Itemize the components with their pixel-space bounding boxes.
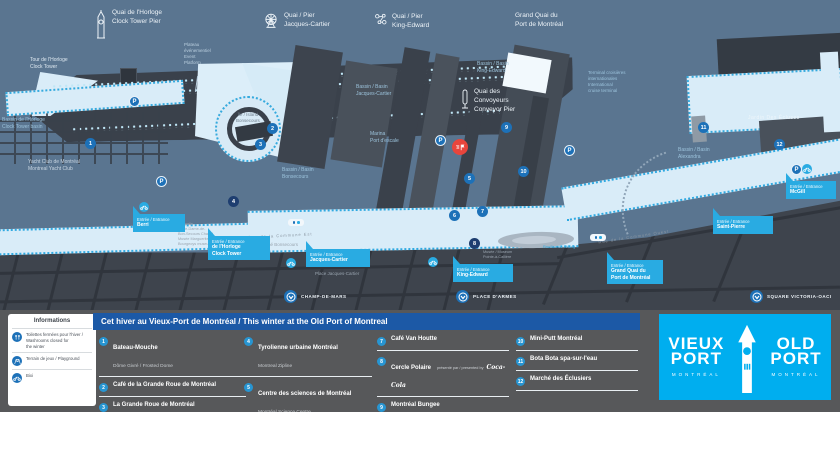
attraction-name: Marché des Éclusiers [530,376,591,384]
attraction-item[interactable]: 12 Marché des Éclusiers [516,376,638,391]
ferris-wheel-icon [263,12,279,29]
logo-english: OLD PORT MONTRÉAL [770,337,821,377]
logo-french: VIEUX PORT MONTRÉAL [668,337,724,377]
legend-item-label: Toilettes fermées pour l'hiver / Washroo… [26,332,83,349]
attraction-item[interactable]: 8 Cercle Polaireprésenté par / presented… [377,356,509,397]
bixi-icon [12,373,22,383]
attraction-name: Café Van Houtte [391,336,437,344]
pier-header-label: Grand Quai duPort de Montréal [515,12,563,30]
attraction-number: 8 [377,357,386,366]
presented-by-label: présenté par / presented by [437,366,483,370]
label-basin-king-edward: Bassin / Basin King-Edward [477,61,509,74]
metro-icon [750,290,763,303]
metro-champ-de-mars[interactable]: CHAMP-DE-MARS [284,290,347,303]
entrance-grand-quai[interactable]: Entrée / EntranceGrand Quai du Port de M… [607,260,663,284]
legend-item-playground: Terrain de jeux / Playground [12,352,92,369]
logo-city: MONTRÉAL [672,372,721,377]
entrance-berri[interactable]: Entrée / EntranceBerri [133,214,185,232]
label-pointe-a-calliere: Musée / Museum Pointe-à-Callière [483,250,512,260]
attractions-column-4: 10 Mini-Putt Montréal 11 Bota Bota spa-s… [516,336,638,396]
map-marker-8[interactable]: 8 [469,238,480,249]
metro-icon [456,290,469,303]
entrance-clock-tower[interactable]: Entrée / Entrancede l'Horloge Clock Towe… [208,236,270,260]
entrance-king-edward[interactable]: Entrée / EntranceKing-Edward [453,264,513,282]
label-basin-jacques-cartier: Bassin / Basin Jacques-Cartier [356,84,391,97]
attraction-name: Montréal Bungee [391,402,440,410]
logo-text: PORT [671,352,722,366]
red-flag-marker[interactable] [452,139,468,155]
attraction-subtitle: Dôme Givré / Frosted Dome [113,364,173,369]
entrance-mcgill[interactable]: Entrée / EntranceMcGill [786,181,836,199]
clock-tower-silhouette-icon [734,321,760,393]
metro-square-victoria[interactable]: SQUARE VICTORIA-OACI [750,290,832,303]
parking-icon[interactable]: P [156,176,167,187]
logo-text: PORT [770,352,821,366]
attraction-number: 7 [377,337,386,346]
attraction-name: Mini-Putt Montréal [530,336,582,344]
informations-title: Informations [12,318,92,324]
attraction-item[interactable]: 11 Bota Bota spa-sur-l'eau [516,356,638,371]
winter-banner: Cet hiver au Vieux-Port de Montréal / Th… [93,313,640,330]
attraction-number: 10 [516,337,525,346]
label-event-platform: Plateau événementiel Event Platform [184,42,211,65]
pier-header-conveyor: Quai desConvoyeursConveyor Pier [461,88,515,114]
banner-title: Cet hiver au Vieux-Port de Montréal / Th… [101,317,388,326]
attraction-number: 4 [244,337,253,346]
parking-icon[interactable]: P [129,96,140,107]
informations-box: Informations Toilettes fermées pour l'hi… [8,314,96,406]
services-icon [288,219,304,226]
attraction-number: 1 [99,337,108,346]
attraction-item[interactable]: 10 Mini-Putt Montréal [516,336,638,351]
grain-tower-icon [461,88,469,110]
label-basin-alexandra: Bassin / Basin Alexandra [678,147,710,160]
attraction-name: Cercle Polaire [391,365,431,371]
map-marker-11[interactable]: 11 [698,122,709,133]
metro-station-label: SQUARE VICTORIA-OACI [767,294,832,299]
legend-item-bixi: Bixi [12,369,92,386]
pier-header-label: Quai / PierJacques-Cartier [284,12,330,30]
legend-item-label: Terrain de jeux / Playground [26,356,80,362]
map-marker-9[interactable]: 9 [501,122,512,133]
attractions-column-1: 1 Bateau-MoucheDôme Givré / Frosted Dome… [99,336,246,422]
clock-tower-icon [95,9,107,39]
attraction-number: 5 [244,383,253,392]
label-yacht-club: Yacht Club de Montréal Montreal Yacht Cl… [28,159,80,172]
map-marker-6[interactable]: 6 [449,210,460,221]
toilet-icon [12,332,22,342]
footer: UNE DIVISION DE A DIVISION OF Société im… [0,412,840,450]
parking-icon[interactable]: P [564,145,575,156]
pier-header-label: Quai desConvoyeursConveyor Pier [474,88,515,114]
right-ice-shape [820,52,840,133]
map-marker-10[interactable]: 10 [518,166,529,177]
bixi-icon[interactable] [802,164,812,174]
label-place-jacques-cartier: Place Jacques-Cartier [315,271,359,277]
bixi-icon[interactable] [286,258,296,268]
pier-header-king-edward: Quai / PierKing-Edward [374,13,429,31]
metro-station-label: PLACE D'ARMES [473,294,517,299]
parking-icon[interactable]: P [435,135,446,146]
attraction-name: Bateau-Mouche [113,345,158,351]
label-pavillon-etang: Pavillon de l'étang [543,244,575,249]
map-canvas[interactable]: Quai de l'HorlogeClock Tower Pier Quai /… [0,0,840,310]
attraction-name: Tyrolienne urbaine Montréal [258,345,338,351]
services-icon [590,234,606,241]
map-marker-4[interactable]: 4 [228,196,239,207]
attraction-item[interactable]: 1 Bateau-MoucheDôme Givré / Frosted Dome [99,336,246,377]
pier-header-label: Quai / PierKing-Edward [392,13,429,31]
old-port-logo: VIEUX PORT MONTRÉAL OLD PORT MONTRÉAL [659,314,831,400]
legend-item-washrooms: Toilettes fermées pour l'hiver / Washroo… [12,328,92,352]
label-clock-tower-basin: Bassin de l'Horloge Clock Tower basin [2,117,45,130]
attraction-number: 3 [99,403,108,412]
old-port-winter-map-page: Quai de l'HorlogeClock Tower Pier Quai /… [0,0,840,450]
pier-header-label: Quai de l'HorlogeClock Tower Pier [112,9,162,27]
attraction-item[interactable]: 2 Café de la Grande Roue de Montréal [99,382,246,397]
attraction-number: 2 [99,383,108,392]
legend-panel: Informations Toilettes fermées pour l'hi… [0,310,840,412]
attraction-name: Café de la Grande Roue de Montréal [113,382,216,390]
metro-station-label: CHAMP-DE-MARS [301,294,347,299]
map-marker-5[interactable]: 5 [464,173,475,184]
pier-header-clock-tower: Quai de l'HorlogeClock Tower Pier [95,9,162,39]
logo-city: MONTRÉAL [772,372,821,377]
label-island-bonsecours: Île / Island Bonsecours [236,112,260,124]
pier-header-jacques-cartier: Quai / PierJacques-Cartier [263,12,330,30]
attraction-name: Centre des sciences de Montréal [258,391,351,397]
street-line [398,246,418,310]
attraction-name: Bota Bota spa-sur-l'eau [530,356,597,364]
attractions-column-3: 7 Café Van Houtte 8 Cercle Polaireprésen… [377,336,509,422]
map-marker-2[interactable]: 2 [267,123,278,134]
attraction-item[interactable]: 4 Tyrolienne urbaine MontréalMontreal Zi… [244,336,372,377]
label-clock-tower: Tour de l'Horloge Clock Tower [30,57,68,70]
legend-item-label: Bixi [26,373,33,379]
label-marina: Marina Port d'escale [370,131,399,144]
flag-icon [455,143,465,151]
attraction-number: 11 [516,357,525,366]
label-jardin-ecluses: Jardin Des Écluses [748,115,800,122]
map-marker-12[interactable]: 12 [774,139,785,150]
attraction-name: La Grande Roue de Montréal [113,402,195,410]
molecule-icon [374,13,387,26]
street-line [178,246,198,310]
attraction-subtitle: Montreal Zipline [258,364,292,369]
label-cruise-terminal: Terminal croisières internationales Inte… [588,70,626,93]
metro-place-darmes[interactable]: PLACE D'ARMES [456,290,517,303]
map-marker-3[interactable]: 3 [255,139,266,150]
entrance-saint-pierre[interactable]: Entrée / EntranceSaint-Pierre [713,216,773,234]
map-marker-1[interactable]: 1 [85,138,96,149]
metro-icon [284,290,297,303]
pier-header-grand-quai: Grand Quai duPort de Montréal [515,12,563,30]
playground-icon [12,356,22,366]
bixi-icon[interactable] [139,202,149,212]
entrance-jacques-cartier[interactable]: Entrée / EntranceJacques-Cartier [306,249,370,267]
label-basin-bonsecours: Bassin / Basin Bonsecours [282,167,314,180]
attraction-number: 12 [516,377,525,386]
attraction-number: 9 [377,403,386,412]
attraction-item[interactable]: 7 Café Van Houtte [377,336,509,351]
bixi-icon[interactable] [428,257,438,267]
map-marker-7[interactable]: 7 [477,206,488,217]
